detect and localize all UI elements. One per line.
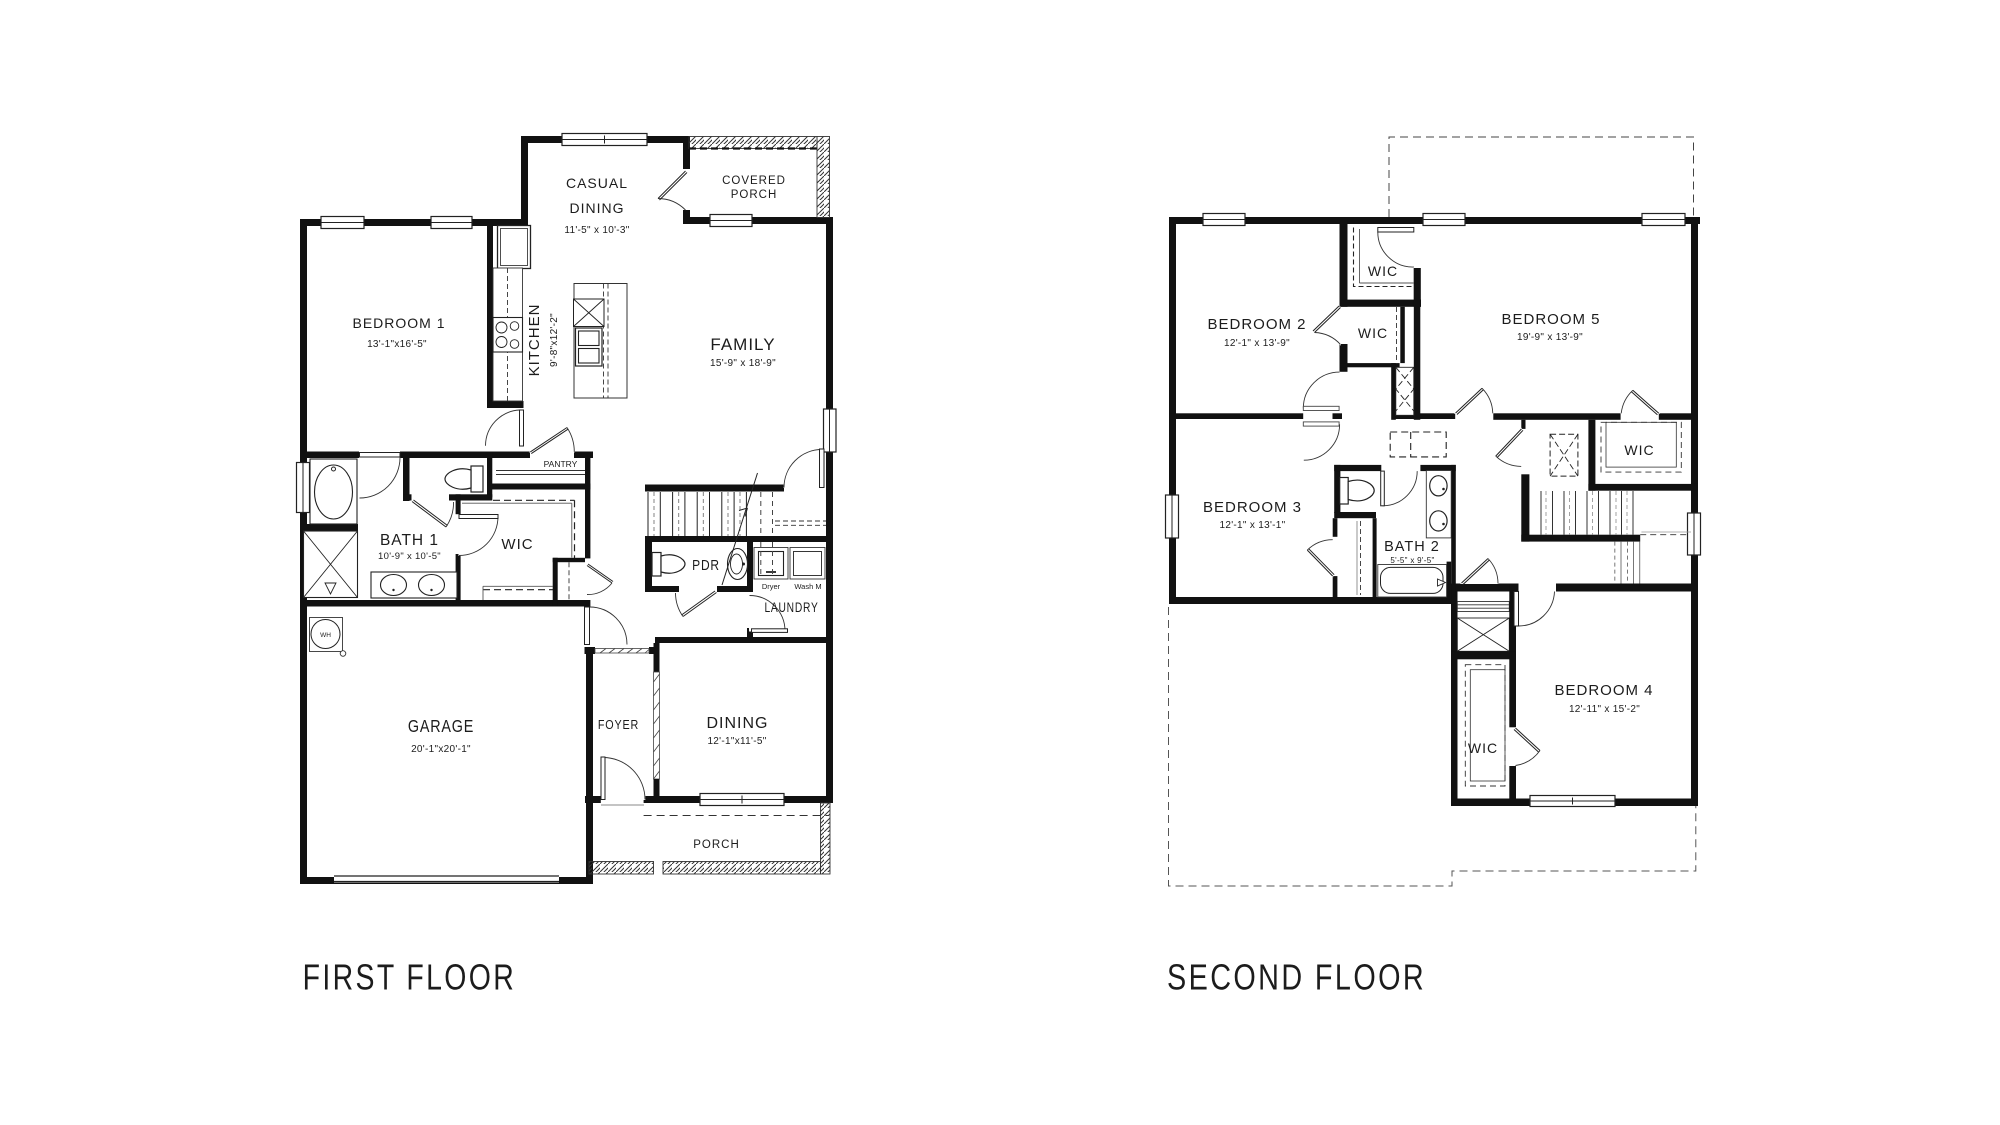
- svg-text:CASUAL: CASUAL: [566, 175, 628, 191]
- svg-text:Wash M: Wash M: [794, 582, 821, 591]
- svg-text:BEDROOM 5: BEDROOM 5: [1501, 311, 1600, 328]
- svg-text:9'-8"x12'-2": 9'-8"x12'-2": [549, 313, 560, 367]
- svg-text:13'-1"x16'-5": 13'-1"x16'-5": [367, 339, 427, 350]
- svg-text:11'-5" x 10'-3": 11'-5" x 10'-3": [564, 225, 629, 236]
- svg-text:Dryer: Dryer: [762, 582, 781, 591]
- svg-text:PORCH: PORCH: [693, 839, 740, 851]
- svg-text:FOYER: FOYER: [598, 717, 639, 732]
- svg-text:WIC: WIC: [1358, 325, 1388, 341]
- svg-text:GARAGE: GARAGE: [408, 718, 474, 737]
- svg-text:12'-1" x 13'-9": 12'-1" x 13'-9": [1224, 338, 1290, 349]
- svg-text:BATH 2: BATH 2: [1384, 539, 1440, 555]
- svg-text:5'-5" x 9'-5": 5'-5" x 9'-5": [1390, 556, 1434, 565]
- svg-text:WH: WH: [320, 632, 331, 639]
- svg-text:19'-9" x 13'-9": 19'-9" x 13'-9": [1517, 332, 1583, 343]
- svg-text:DINING: DINING: [707, 715, 769, 732]
- svg-text:BATH 1: BATH 1: [380, 532, 439, 549]
- svg-text:KITCHEN: KITCHEN: [526, 304, 543, 377]
- svg-text:12'-1" x 13'-1": 12'-1" x 13'-1": [1219, 520, 1285, 531]
- svg-text:FAMILY: FAMILY: [710, 335, 775, 354]
- svg-text:BEDROOM 4: BEDROOM 4: [1554, 682, 1653, 699]
- svg-text:WIC: WIC: [1468, 740, 1498, 756]
- svg-text:15'-9" x 18'-9": 15'-9" x 18'-9": [710, 358, 776, 369]
- svg-text:PANTRY: PANTRY: [544, 459, 578, 469]
- svg-text:BEDROOM 2: BEDROOM 2: [1207, 316, 1306, 333]
- svg-text:SECOND FLOOR: SECOND FLOOR: [1167, 956, 1426, 997]
- svg-text:PDR: PDR: [692, 557, 720, 574]
- svg-text:FIRST FLOOR: FIRST FLOOR: [303, 957, 517, 997]
- svg-text:WIC: WIC: [501, 536, 533, 553]
- svg-text:BEDROOM 3: BEDROOM 3: [1203, 499, 1302, 516]
- svg-text:DINING: DINING: [570, 200, 625, 216]
- svg-text:WIC: WIC: [1624, 442, 1654, 458]
- svg-text:12'-1"x11'-5": 12'-1"x11'-5": [707, 736, 766, 747]
- svg-text:20'-1"x20'-1": 20'-1"x20'-1": [411, 744, 471, 755]
- svg-text:12'-11" x 15'-2": 12'-11" x 15'-2": [1569, 704, 1640, 715]
- svg-text:COVERED: COVERED: [722, 175, 786, 187]
- svg-text:LAUNDRY: LAUNDRY: [764, 600, 818, 616]
- svg-text:BEDROOM 1: BEDROOM 1: [352, 315, 445, 331]
- svg-text:WIC: WIC: [1368, 263, 1398, 279]
- svg-text:PORCH: PORCH: [731, 189, 778, 201]
- svg-text:10'-9" x 10'-5": 10'-9" x 10'-5": [378, 551, 441, 562]
